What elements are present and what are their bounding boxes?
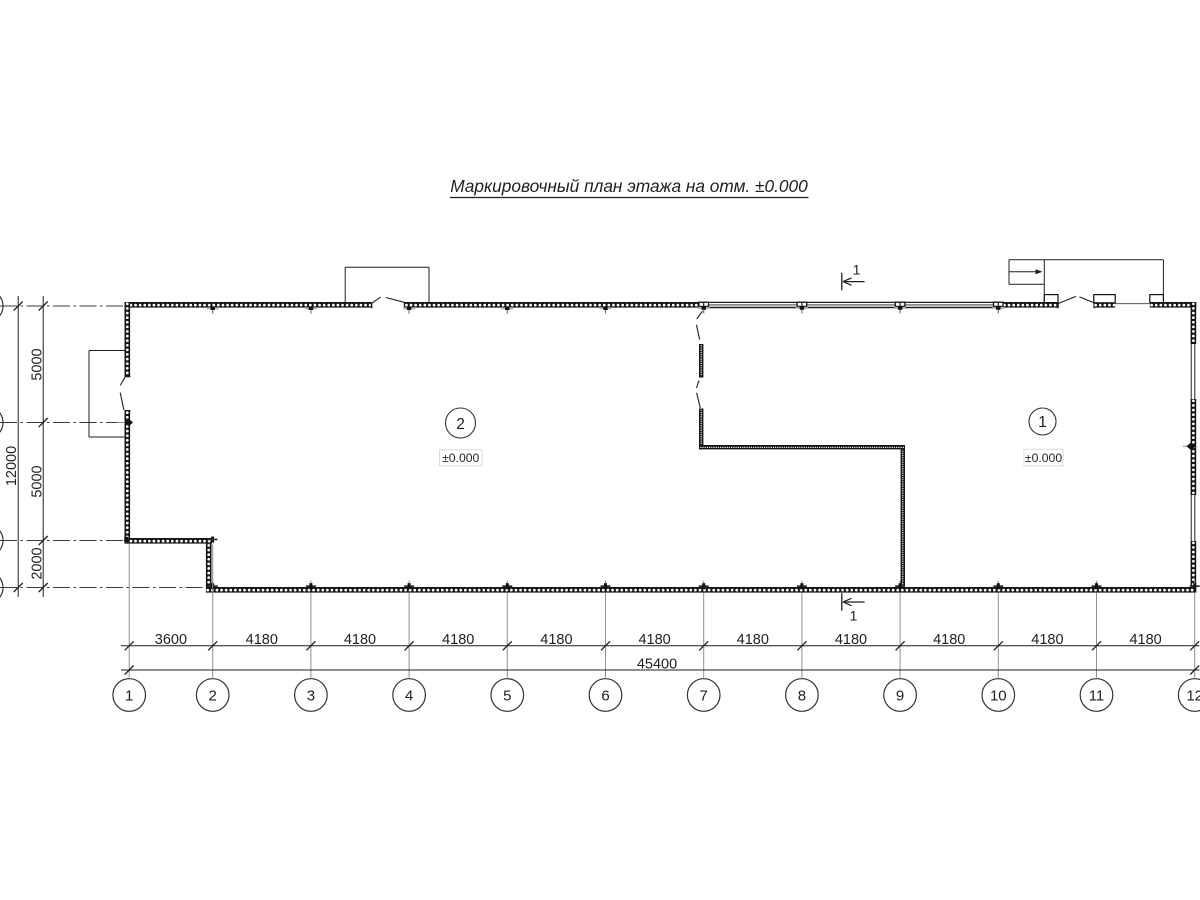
svg-text:2: 2: [456, 416, 465, 433]
svg-text:4180: 4180: [344, 632, 376, 648]
svg-text:11: 11: [1089, 688, 1105, 705]
svg-text:4180: 4180: [442, 632, 474, 648]
svg-text:4: 4: [405, 688, 413, 705]
svg-text:8: 8: [798, 688, 806, 705]
svg-text:1: 1: [1038, 414, 1047, 431]
svg-text:4180: 4180: [540, 632, 572, 648]
svg-text:7: 7: [700, 688, 708, 705]
svg-text:4180: 4180: [737, 632, 769, 648]
svg-text:4180: 4180: [933, 632, 965, 648]
svg-text:12: 12: [1186, 688, 1200, 705]
svg-text:±0.000: ±0.000: [442, 451, 479, 465]
svg-text:4180: 4180: [1129, 632, 1161, 648]
svg-text:4180: 4180: [246, 632, 278, 648]
svg-text:5: 5: [503, 688, 511, 705]
svg-text:4180: 4180: [835, 632, 867, 648]
svg-text:4180: 4180: [638, 632, 670, 648]
svg-text:5000: 5000: [30, 348, 46, 380]
svg-text:1: 1: [850, 608, 858, 624]
svg-text:3600: 3600: [155, 632, 187, 648]
svg-text:5000: 5000: [30, 465, 46, 497]
svg-text:4180: 4180: [1031, 632, 1063, 648]
svg-text:12000: 12000: [4, 446, 20, 486]
svg-text:3: 3: [307, 688, 315, 705]
svg-text:±0.000: ±0.000: [1025, 451, 1062, 465]
svg-text:6: 6: [601, 688, 609, 705]
svg-text:2: 2: [209, 688, 217, 705]
svg-text:10: 10: [990, 688, 1007, 705]
svg-text:45400: 45400: [637, 656, 677, 672]
svg-text:9: 9: [896, 688, 904, 705]
svg-text:2000: 2000: [30, 547, 46, 579]
svg-text:1: 1: [853, 262, 861, 278]
svg-text:1: 1: [125, 688, 133, 705]
svg-text:Маркировочный план этажа на от: Маркировочный план этажа на отм. ±0.000: [450, 176, 808, 196]
